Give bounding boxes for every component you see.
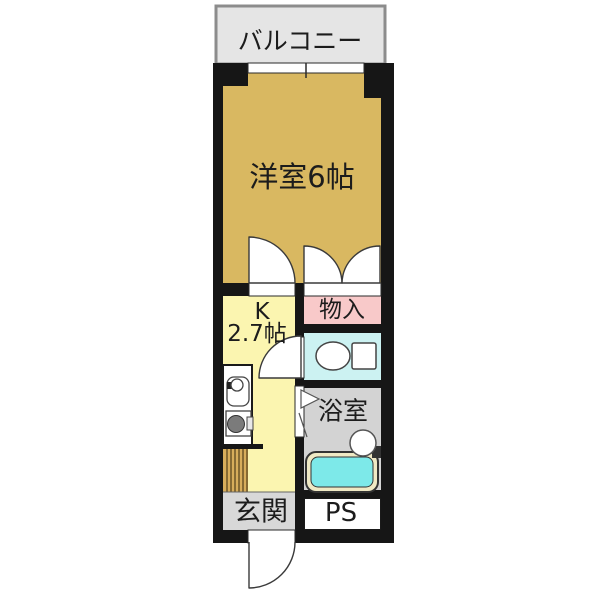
kitchen-counter	[223, 365, 253, 445]
balcony-label: バルコニー	[238, 27, 363, 56]
floor-plan: バルコニー	[0, 0, 600, 600]
wall-segment	[295, 324, 394, 333]
wall-segment	[381, 63, 394, 543]
stove-grill	[247, 417, 253, 430]
wall-segment	[295, 380, 394, 388]
wall-segment	[213, 63, 248, 86]
step-edge-bar	[223, 444, 263, 449]
wall-segment	[295, 283, 304, 296]
bathtub-water	[311, 457, 373, 487]
wall-segment	[295, 530, 394, 543]
door-opening	[248, 530, 295, 543]
wall-segment	[295, 437, 304, 530]
closet-label: 物入	[319, 297, 365, 323]
toilet-bowl	[316, 342, 350, 370]
bath-label: 浴室	[318, 397, 368, 426]
sink-faucet	[231, 379, 243, 391]
stove-burner-icon	[226, 411, 253, 436]
entrance-door-swing-arc	[249, 542, 295, 588]
door-opening	[304, 283, 381, 296]
pipe-space-label: PS	[325, 498, 357, 528]
toilet-tank	[352, 343, 376, 369]
wall-segment	[364, 63, 394, 98]
washbasin-bowl	[350, 430, 376, 456]
entrance-label: 玄関	[234, 497, 288, 528]
door-opening	[249, 283, 295, 296]
kitchen-label-line2: 2.7帖	[227, 321, 287, 347]
bathtub-icon	[306, 452, 378, 492]
wall-segment	[213, 530, 248, 543]
toilet-icon	[316, 342, 376, 370]
kitchen-sink-icon	[227, 377, 249, 406]
wall-segment	[213, 283, 249, 296]
stove-burner	[228, 416, 245, 433]
wall-segment	[213, 63, 223, 543]
western-room-label: 洋室6帖	[249, 160, 354, 194]
balcony: バルコニー	[216, 6, 385, 64]
floor-plan-drawing: バルコニー	[0, 0, 600, 600]
